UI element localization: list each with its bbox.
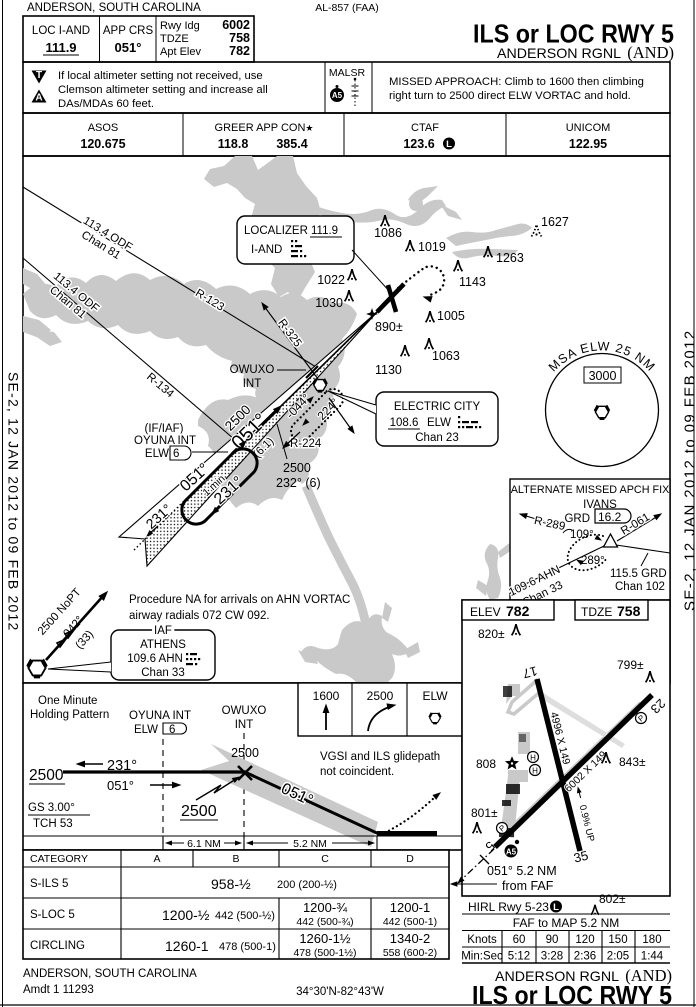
- svg-text:442 (500-½): 442 (500-½): [215, 910, 275, 922]
- svg-text:051°: 051°: [107, 778, 134, 793]
- svg-text:MISSED APPROACH: Climb to 1600: MISSED APPROACH: Climb to 1600 then clim…: [389, 76, 644, 88]
- svg-text:OYUNA INT: OYUNA INT: [134, 435, 196, 447]
- svg-text:APP CRS: APP CRS: [103, 25, 154, 37]
- svg-text:A5: A5: [332, 91, 343, 100]
- svg-text:1263: 1263: [496, 251, 524, 265]
- svg-text:6.1 NM: 6.1 NM: [187, 838, 221, 850]
- svg-text:CTAF: CTAF: [411, 122, 439, 134]
- svg-text:109.6 AHN: 109.6 AHN: [127, 653, 183, 665]
- svg-text:A5: A5: [506, 848, 517, 857]
- svg-text:120.675: 120.675: [80, 137, 125, 151]
- svg-text:1063: 1063: [432, 349, 460, 363]
- svg-text:5:12: 5:12: [508, 951, 530, 963]
- svg-text:232° (6): 232° (6): [276, 476, 321, 490]
- svg-text:INT: INT: [235, 719, 254, 731]
- svg-text:1130: 1130: [375, 363, 402, 377]
- svg-text:6: 6: [169, 724, 175, 736]
- svg-text:airway radials 072 CW 092.: airway radials 072 CW 092.: [129, 610, 270, 622]
- svg-text:180: 180: [642, 934, 661, 946]
- svg-text:A: A: [35, 93, 42, 104]
- svg-text:Chan 33: Chan 33: [141, 667, 184, 679]
- svg-text:INT: INT: [243, 378, 262, 390]
- svg-text:385.4: 385.4: [276, 137, 307, 151]
- svg-text:Apt Elev: Apt Elev: [160, 46, 201, 58]
- svg-text:118.8: 118.8: [218, 137, 249, 151]
- svg-text:2500: 2500: [367, 689, 394, 703]
- svg-text:T: T: [36, 70, 42, 81]
- svg-text:2500: 2500: [283, 461, 311, 475]
- svg-text:FAF to MAP 5.2 NM: FAF to MAP 5.2 NM: [513, 916, 619, 930]
- svg-text:478 (500-1½): 478 (500-1½): [293, 947, 356, 959]
- svg-text:ELW: ELW: [422, 689, 448, 703]
- svg-text:OWUXO: OWUXO: [222, 705, 267, 717]
- svg-text:1627: 1627: [541, 215, 569, 229]
- svg-text:ANDERSON, SOUTH CAROLINA: ANDERSON, SOUTH CAROLINA: [23, 968, 197, 980]
- svg-text:Amdt 1 11293: Amdt 1 11293: [23, 984, 94, 996]
- svg-text:S-LOC 5: S-LOC 5: [30, 909, 75, 921]
- svg-text:OWUXO: OWUXO: [230, 364, 275, 376]
- svg-text:I-AND: I-AND: [251, 244, 282, 256]
- svg-text:5.2 NM: 5.2 NM: [293, 838, 327, 850]
- svg-text:122.95: 122.95: [569, 137, 607, 151]
- svg-text:90: 90: [546, 934, 559, 946]
- svg-text:UNICOM: UNICOM: [566, 122, 611, 134]
- svg-text:Chan 23: Chan 23: [415, 432, 458, 444]
- svg-text:CATEGORY: CATEGORY: [30, 853, 88, 865]
- svg-text:Rwy Idg: Rwy Idg: [160, 20, 200, 32]
- svg-text:843±: 843±: [619, 755, 646, 769]
- svg-text:200 (200-½): 200 (200-½): [277, 879, 337, 891]
- svg-text:If local altimeter setting not: If local altimeter setting not received,…: [58, 70, 263, 82]
- svg-text:6002: 6002: [222, 18, 250, 32]
- svg-text:758: 758: [229, 31, 250, 45]
- svg-text:CIRCLING: CIRCLING: [30, 940, 85, 952]
- svg-text:(IF/IAF): (IF/IAF): [145, 423, 184, 435]
- svg-text:Knots: Knots: [467, 934, 497, 946]
- svg-text:GREER APP CON★: GREER APP CON★: [215, 122, 314, 134]
- svg-text:3000: 3000: [589, 369, 617, 383]
- svg-text:808: 808: [476, 757, 496, 771]
- svg-text:LOCALIZER: LOCALIZER: [244, 225, 308, 237]
- svg-text:GS 3.00°: GS 3.00°: [28, 802, 75, 814]
- svg-text:ELECTRIC CITY: ELECTRIC CITY: [394, 401, 481, 413]
- svg-text:AL-857 (FAA): AL-857 (FAA): [315, 2, 379, 14]
- svg-text:231°: 231°: [107, 758, 137, 774]
- svg-text:L: L: [553, 902, 559, 913]
- svg-text:758: 758: [617, 603, 641, 619]
- svg-text:60: 60: [513, 934, 526, 946]
- svg-text:2:05: 2:05: [607, 951, 629, 963]
- svg-text:1005: 1005: [437, 309, 465, 323]
- svg-text:S-ILS 5: S-ILS 5: [30, 878, 68, 890]
- svg-text:2:36: 2:36: [574, 951, 596, 963]
- svg-text:ELW: ELW: [145, 448, 169, 460]
- svg-text:6: 6: [173, 448, 179, 460]
- svg-text:HIRL Rwy 5-23: HIRL Rwy 5-23: [468, 900, 549, 914]
- svg-text:IAF: IAF: [154, 625, 172, 637]
- svg-text:L: L: [446, 139, 452, 150]
- svg-text:1600: 1600: [313, 689, 340, 703]
- svg-text:442 (500-¾): 442 (500-¾): [296, 916, 353, 928]
- svg-text:VGSI and ILS glidepath: VGSI and ILS glidepath: [320, 751, 440, 763]
- svg-text:1200-½: 1200-½: [162, 907, 210, 923]
- svg-text:1086: 1086: [374, 226, 402, 240]
- svg-text:120: 120: [575, 934, 594, 946]
- svg-text:from FAF: from FAF: [502, 879, 554, 893]
- svg-text:ALTERNATE MISSED APCH FIX: ALTERNATE MISSED APCH FIX: [511, 484, 670, 496]
- svg-text:A: A: [153, 853, 160, 865]
- svg-text:2500: 2500: [29, 767, 64, 784]
- svg-text:2500: 2500: [231, 746, 259, 760]
- svg-text:051° 5.2 NM: 051° 5.2 NM: [487, 864, 557, 878]
- svg-text:DAs/MDAs 60 feet.: DAs/MDAs 60 feet.: [58, 98, 154, 110]
- svg-text:1200-¾: 1200-¾: [303, 900, 347, 915]
- svg-text:Procedure NA for arrivals on A: Procedure NA for arrivals on AHN VORTAC: [129, 594, 350, 606]
- svg-text:One Minute: One Minute: [38, 695, 97, 707]
- svg-text:Clemson altimeter setting and: Clemson altimeter setting and increase a…: [58, 84, 268, 96]
- svg-text:782: 782: [229, 44, 250, 58]
- svg-text:3:28: 3:28: [541, 951, 563, 963]
- svg-text:801±: 801±: [471, 806, 498, 820]
- svg-text:1340-2: 1340-2: [390, 931, 430, 946]
- svg-text:not coincident.: not coincident.: [320, 766, 394, 778]
- svg-text:ELEV: ELEV: [470, 605, 501, 619]
- svg-text:OYUNA INT: OYUNA INT: [129, 710, 191, 722]
- svg-text:1200-1: 1200-1: [390, 900, 430, 915]
- svg-text:D: D: [406, 853, 414, 865]
- svg-text:558 (600-2): 558 (600-2): [383, 947, 437, 959]
- svg-text:ELW: ELW: [134, 724, 158, 736]
- svg-text:820±: 820±: [478, 627, 505, 641]
- svg-text:Holding Pattern: Holding Pattern: [30, 709, 109, 721]
- svg-text:958-½: 958-½: [211, 876, 251, 892]
- svg-text:ANDERSON, SOUTH CAROLINA: ANDERSON, SOUTH CAROLINA: [27, 2, 201, 14]
- svg-text:Min:Sec: Min:Sec: [461, 951, 503, 963]
- svg-text:890±: 890±: [375, 320, 403, 334]
- svg-text:right turn to 2500 direct ELW: right turn to 2500 direct ELW VORTAC and…: [389, 90, 631, 102]
- svg-text:1260-1½: 1260-1½: [299, 931, 350, 946]
- svg-text:ANDERSON RGNL: ANDERSON RGNL: [497, 45, 621, 61]
- svg-text:109°: 109°: [570, 529, 594, 541]
- svg-text:111.9: 111.9: [45, 40, 76, 55]
- svg-text:R-224: R-224: [290, 438, 322, 450]
- svg-text:1:44: 1:44: [641, 951, 664, 963]
- svg-text:1019: 1019: [418, 240, 446, 254]
- svg-text:H: H: [532, 767, 538, 776]
- svg-text:Chan 102: Chan 102: [615, 581, 665, 593]
- svg-text:289°: 289°: [581, 555, 605, 567]
- svg-text:799±: 799±: [617, 658, 644, 672]
- svg-text:1022: 1022: [317, 273, 345, 287]
- svg-text:16.2: 16.2: [598, 510, 622, 524]
- svg-text:(AND): (AND): [627, 43, 674, 62]
- svg-text:115.5 GRD: 115.5 GRD: [610, 568, 667, 580]
- svg-text:ILS or LOC RWY 5: ILS or LOC RWY 5: [472, 980, 672, 1007]
- svg-text:123.6: 123.6: [403, 137, 434, 151]
- svg-text:ASOS: ASOS: [88, 122, 119, 134]
- svg-text:TDZE: TDZE: [160, 33, 189, 45]
- svg-text:1260-1: 1260-1: [165, 938, 209, 954]
- svg-text:34°30'N-82°43'W: 34°30'N-82°43'W: [296, 986, 384, 998]
- svg-text:SE-2, 12 JAN 2012 to 09 FEB 20: SE-2, 12 JAN 2012 to 09 FEB 2012: [682, 329, 696, 611]
- svg-text:1030: 1030: [315, 296, 343, 310]
- svg-text:150: 150: [608, 934, 627, 946]
- svg-text:478 (500-1): 478 (500-1): [219, 941, 276, 953]
- svg-text:H: H: [530, 754, 536, 763]
- svg-text:LOC I-AND: LOC I-AND: [32, 25, 90, 37]
- svg-text:051°: 051°: [115, 40, 142, 55]
- svg-text:782: 782: [506, 603, 530, 619]
- svg-text:802±: 802±: [599, 892, 626, 906]
- svg-text:442 (500-1): 442 (500-1): [383, 916, 437, 928]
- svg-text:ATHENS: ATHENS: [140, 639, 186, 651]
- svg-text:MALSR: MALSR: [329, 67, 366, 79]
- svg-text:ELW: ELW: [427, 417, 451, 429]
- svg-text:C: C: [321, 853, 329, 865]
- svg-text:SE-2, 12 JAN 2012 to 09 FEB 20: SE-2, 12 JAN 2012 to 09 FEB 2012: [6, 372, 22, 631]
- svg-text:1143: 1143: [459, 275, 486, 289]
- svg-text:108.6: 108.6: [390, 417, 419, 429]
- svg-text:111.9: 111.9: [311, 225, 338, 237]
- svg-text:2500: 2500: [181, 803, 217, 820]
- svg-text:B: B: [232, 853, 239, 865]
- svg-text:TCH 53: TCH 53: [33, 818, 73, 830]
- svg-text:GRD: GRD: [564, 513, 590, 525]
- svg-text:TDZE: TDZE: [581, 605, 612, 619]
